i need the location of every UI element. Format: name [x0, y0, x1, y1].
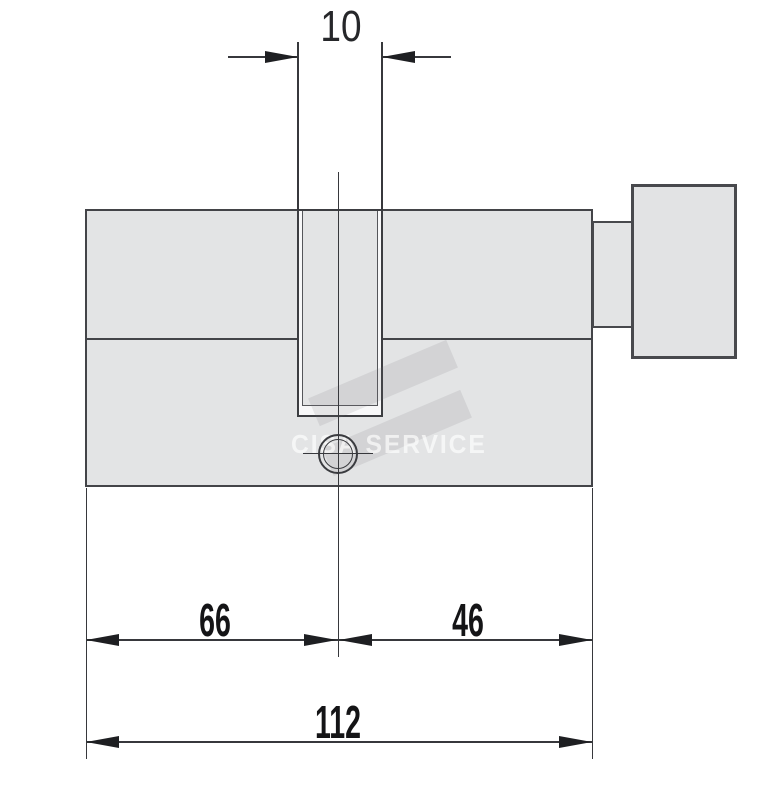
- dimension-label-overall-length: 112: [307, 699, 369, 745]
- extension-line-left: [86, 488, 88, 759]
- thumbturn-knob: [631, 184, 737, 359]
- vertical-center-line: [338, 172, 340, 657]
- extension-line-right: [592, 488, 594, 759]
- arrowhead-112-right: [559, 736, 592, 748]
- slot-extension-line-left: [297, 42, 299, 210]
- arrowhead-slot-left: [265, 51, 298, 63]
- dimension-label-left-side: 66: [184, 597, 246, 643]
- arrowhead-46-right: [559, 634, 592, 646]
- slot-extension-line-right: [381, 42, 383, 210]
- arrowhead-slot-right: [382, 51, 415, 63]
- dimension-label-slot-width: 10: [307, 5, 374, 49]
- arrowhead-66-right: [304, 634, 337, 646]
- dimension-label-right-side: 46: [437, 597, 499, 643]
- arrowhead-46-left: [339, 634, 372, 646]
- arrowhead-66-left: [86, 634, 119, 646]
- cylinder-dimension-diagram: CISA SERVICE 10 66 46 112: [0, 0, 762, 795]
- arrowhead-112-left: [86, 736, 119, 748]
- thumbturn-neck: [592, 221, 633, 328]
